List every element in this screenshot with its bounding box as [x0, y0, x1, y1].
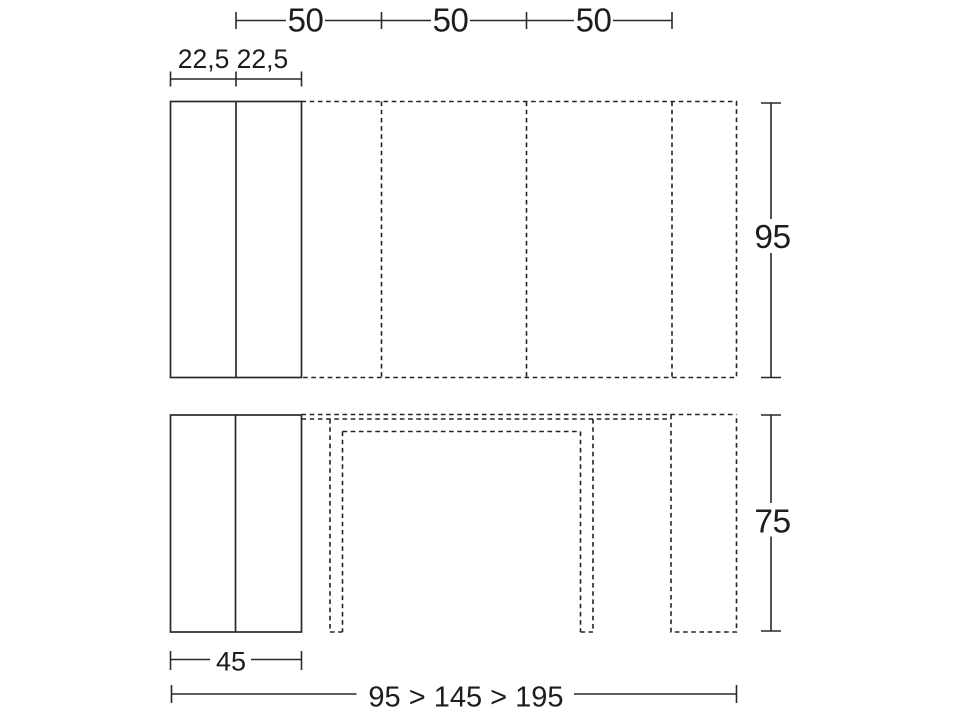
svg-text:95: 95: [754, 219, 790, 256]
svg-text:50: 50: [433, 2, 469, 39]
svg-text:75: 75: [754, 504, 790, 541]
svg-text:22,5 22,5: 22,5 22,5: [178, 44, 289, 74]
svg-text:50: 50: [576, 2, 612, 39]
svg-text:45: 45: [216, 647, 246, 677]
svg-text:50: 50: [288, 2, 324, 39]
svg-text:95 > 145 > 195: 95 > 145 > 195: [368, 682, 563, 714]
